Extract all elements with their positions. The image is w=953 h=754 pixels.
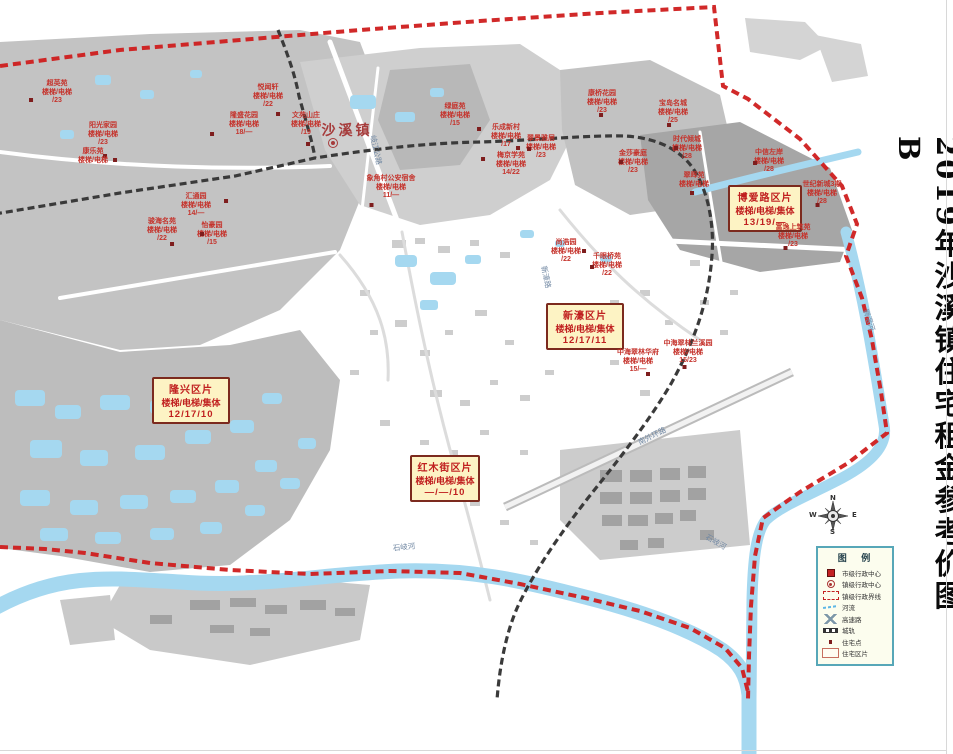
site-name: 千眼桥苑 [592, 253, 622, 262]
legend-label: 城轨 [842, 625, 855, 635]
legend-label: 河流 [842, 602, 855, 612]
site-categories: 楼梯/电梯 [440, 112, 470, 121]
residential-site-label: 悦闻轩 楼梯/电梯 /22 [253, 84, 283, 110]
legend-symbol [822, 648, 839, 658]
compass-rose [818, 501, 848, 531]
compass-west-label: W [809, 511, 817, 519]
site-name: 康乐苑 [78, 148, 108, 157]
site-name: 中海翠林华府 [617, 349, 659, 358]
legend-row: 住宅区片 [822, 648, 888, 660]
compass-north-label: N [830, 494, 836, 502]
legend-symbol [822, 591, 839, 601]
site-categories: 楼梯/电梯 [42, 89, 72, 98]
residential-site-label: 中信左岸 楼梯/电梯 /28 [754, 149, 784, 175]
residential-site-label: 时代倾城 楼梯/电梯 /28 [672, 136, 702, 162]
site-price: 11/— [367, 192, 416, 201]
site-categories: 楼梯/电梯 [253, 93, 283, 102]
site-name: 翠晖苑 [679, 172, 709, 181]
residential-point-marker [682, 365, 686, 369]
site-name: 文苑山庄 [291, 112, 321, 121]
residential-site-label: 翠晖苑 楼梯/电梯 [679, 172, 709, 189]
legend-row: 城轨 [822, 625, 888, 637]
legend-row: 河流 [822, 602, 888, 614]
legend-symbol [822, 602, 839, 612]
district-prices: —/—/10 [415, 487, 475, 498]
site-categories: 楼梯/电梯 [181, 202, 211, 211]
residential-site-label: 乐成新村 楼梯/电梯 /17 [491, 124, 521, 150]
site-categories: 楼梯/电梯 [88, 131, 118, 140]
legend-label: 住宅点 [842, 637, 862, 647]
site-name: 汇通园 [181, 193, 211, 202]
district-name: 红木街区片 [415, 459, 475, 474]
page-title: 2019年沙溪镇住宅租金参考价图B [892, 136, 953, 628]
site-categories: 楼梯/电梯 [592, 262, 622, 271]
legend-row: 住宅点 [822, 636, 888, 648]
residential-point-marker [590, 265, 594, 269]
residential-point-marker [170, 242, 174, 246]
residential-point-marker [527, 147, 531, 151]
legend-row: 市级行政中心 [822, 567, 888, 579]
residential-point-marker [582, 249, 586, 253]
site-price: /23 [776, 241, 811, 250]
site-name: 隆盛花园 [229, 112, 259, 121]
residential-point-marker [646, 372, 650, 376]
residential-site-label: 象角村公安宿舍 楼梯/电梯 11/— [367, 175, 416, 201]
site-name: 翠景雅居 [526, 135, 556, 144]
residential-point-marker [113, 158, 117, 162]
residential-point-marker [306, 142, 310, 146]
legend-label: 住宅区片 [842, 648, 868, 658]
site-price: /23 [88, 139, 118, 148]
residential-point-marker [276, 112, 280, 116]
residential-site-label: 怡豪园 楼梯/电梯 /15 [197, 222, 227, 248]
site-categories: 楼梯/电梯 [229, 121, 259, 130]
residential-point-marker [224, 199, 228, 203]
site-price: /23 [618, 167, 648, 176]
site-price: 14/— [181, 210, 211, 219]
legend-row: 镇级行政中心 [822, 579, 888, 591]
legend-symbol [822, 637, 839, 647]
site-name: 阳光家园 [88, 122, 118, 131]
residential-point-marker [477, 127, 481, 131]
site-categories: 楼梯/电梯 [551, 248, 581, 257]
site-name: 世纪新城3期 [803, 181, 842, 190]
district-categories: 楼梯/电梯/集体 [551, 322, 619, 335]
site-name: 时代倾城 [672, 136, 702, 145]
site-categories: 楼梯/电梯 [147, 227, 177, 236]
district-prices: 12/17/11 [551, 335, 619, 346]
district-categories: 楼梯/电梯/集体 [733, 204, 797, 217]
site-price: 18/— [229, 129, 259, 138]
residential-point-marker [619, 160, 623, 164]
residential-point-marker [690, 191, 694, 195]
site-name: 富逸上筑苑 [776, 224, 811, 233]
site-name: 康桥花园 [587, 90, 617, 99]
site-price: /22 [253, 101, 283, 110]
residential-point-marker [200, 232, 204, 236]
residential-site-label: 文苑山庄 楼梯/电梯 /19 [291, 112, 321, 138]
site-categories: 楼梯/电梯 [617, 358, 659, 367]
site-price: /15 [440, 120, 470, 129]
legend-label: 市级行政中心 [842, 568, 881, 578]
site-price: /28 [803, 198, 842, 207]
residential-point-marker [753, 161, 757, 165]
legend-symbol [822, 579, 839, 589]
district-name: 博爱路区片 [733, 189, 797, 204]
site-categories: 楼梯/电梯 [78, 157, 108, 166]
legend-title: 图 例 [826, 551, 888, 564]
residential-point-marker [369, 203, 373, 207]
site-categories: 楼梯/电梯 [658, 109, 688, 118]
compass-east-label: E [852, 511, 857, 519]
road-name-label: 石岐河 [392, 540, 416, 553]
site-price: 14/22 [496, 169, 526, 178]
site-categories: 楼梯/电梯 [587, 99, 617, 108]
residential-site-label: 尚浩园 楼梯/电梯 /22 [551, 239, 581, 265]
site-price: /28 [754, 166, 784, 175]
residential-point-marker [516, 146, 520, 150]
site-categories: 楼梯/电梯 [679, 181, 709, 190]
site-name: 乐成新村 [491, 124, 521, 133]
district-prices: 12/17/10 [157, 409, 225, 420]
residential-site-label: 康桥花园 楼梯/电梯 /23 [587, 90, 617, 116]
site-price: 15/23 [664, 357, 713, 366]
site-price: /22 [551, 256, 581, 265]
site-name: 中信左岸 [754, 149, 784, 158]
residential-site-label: 汇通园 楼梯/电梯 14/— [181, 193, 211, 219]
site-categories: 楼梯/电梯 [754, 158, 784, 167]
site-name: 金莎豪庭 [618, 150, 648, 159]
residential-site-label: 翠景雅居 楼梯/电梯 /23 [526, 135, 556, 161]
residential-site-label: 宝岛名城 楼梯/电梯 /25 [658, 100, 688, 126]
residential-site-label: 中海翠林兰溪园 楼梯/电梯 15/23 [664, 340, 713, 366]
residential-site-label: 金莎豪庭 楼梯/电梯 /23 [618, 150, 648, 176]
legend-label: 镇级行政中心 [842, 579, 881, 589]
district-price-box: 红木街区片 楼梯/电梯/集体 —/—/10 [410, 455, 480, 502]
legend-label: 镇级行政界线 [842, 591, 881, 601]
legend-symbol [822, 614, 839, 624]
site-categories: 楼梯/电梯 [664, 349, 713, 358]
residential-site-label: 康乐苑 楼梯/电梯 [78, 148, 108, 165]
map-page: 沙溪镇 隆兴区片 楼梯/电梯/集体 12/17/10 红木街区片 楼梯/电梯/集… [0, 0, 953, 754]
site-price: /28 [672, 153, 702, 162]
page-right-border [946, 0, 947, 754]
legend-symbol [822, 568, 839, 578]
site-categories: 楼梯/电梯 [496, 161, 526, 170]
residential-point-marker [816, 203, 820, 207]
site-categories: 楼梯/电梯 [803, 190, 842, 199]
residential-site-label: 骏海名苑 楼梯/电梯 /22 [147, 218, 177, 244]
legend-row: 高速路 [822, 613, 888, 625]
site-name: 绿庭苑 [440, 103, 470, 112]
site-price: /19 [291, 129, 321, 138]
site-price: /23 [526, 152, 556, 161]
residential-point-marker [29, 98, 33, 102]
residential-site-label: 阳光家园 楼梯/电梯 /23 [88, 122, 118, 148]
map-canvas [0, 0, 953, 754]
residential-point-marker [674, 146, 678, 150]
site-price: /23 [42, 97, 72, 106]
site-price: /15 [197, 239, 227, 248]
site-categories: 楼梯/电梯 [291, 121, 321, 130]
site-name: 象角村公安宿舍 [367, 175, 416, 184]
site-name: 宝岛名城 [658, 100, 688, 109]
district-categories: 楼梯/电梯/集体 [157, 396, 225, 409]
site-name: 中海翠林兰溪园 [664, 340, 713, 349]
residential-site-label: 中海翠林华府 楼梯/电梯 15/— [617, 349, 659, 375]
compass-south-label: S [830, 528, 835, 536]
district-name: 隆兴区片 [157, 381, 225, 396]
legend-symbol [822, 625, 839, 635]
residential-point-marker [783, 246, 787, 250]
residential-site-label: 超英苑 楼梯/电梯 /23 [42, 80, 72, 106]
residential-site-label: 富逸上筑苑 楼梯/电梯 /23 [776, 224, 811, 250]
page-bottom-border [0, 750, 947, 751]
residential-site-label: 梅京学苑 楼梯/电梯 14/22 [496, 152, 526, 178]
site-name: 梅京学苑 [496, 152, 526, 161]
town-name-label: 沙溪镇 [322, 120, 373, 140]
legend-panel: 图 例 市级行政中心 镇级行政中心 镇级行政界线 河流 高速路 城轨 [816, 546, 894, 666]
residential-point-marker [599, 113, 603, 117]
site-name: 悦闻轩 [253, 84, 283, 93]
site-price: /22 [592, 270, 622, 279]
district-price-box: 隆兴区片 楼梯/电梯/集体 12/17/10 [152, 377, 230, 424]
residential-point-marker [210, 132, 214, 136]
site-name: 尚浩园 [551, 239, 581, 248]
site-categories: 楼梯/电梯 [491, 133, 521, 142]
site-categories: 楼梯/电梯 [367, 184, 416, 193]
residential-site-label: 隆盛花园 楼梯/电梯 18/— [229, 112, 259, 138]
site-categories: 楼梯/电梯 [776, 233, 811, 242]
residential-site-label: 绿庭苑 楼梯/电梯 /15 [440, 103, 470, 129]
district-categories: 楼梯/电梯/集体 [415, 474, 475, 487]
district-price-box: 新濠区片 楼梯/电梯/集体 12/17/11 [546, 303, 624, 350]
residential-site-label: 世纪新城3期 楼梯/电梯 /28 [803, 181, 842, 207]
site-name: 怡豪园 [197, 222, 227, 231]
site-name: 超英苑 [42, 80, 72, 89]
residential-point-marker [481, 157, 485, 161]
legend-row: 镇级行政界线 [822, 590, 888, 602]
site-price: /25 [658, 117, 688, 126]
legend-label: 高速路 [842, 614, 862, 624]
site-price: 15/— [617, 366, 659, 375]
residential-site-label: 千眼桥苑 楼梯/电梯 /22 [592, 253, 622, 279]
district-name: 新濠区片 [551, 307, 619, 322]
site-name: 骏海名苑 [147, 218, 177, 227]
residential-point-marker [667, 123, 671, 127]
